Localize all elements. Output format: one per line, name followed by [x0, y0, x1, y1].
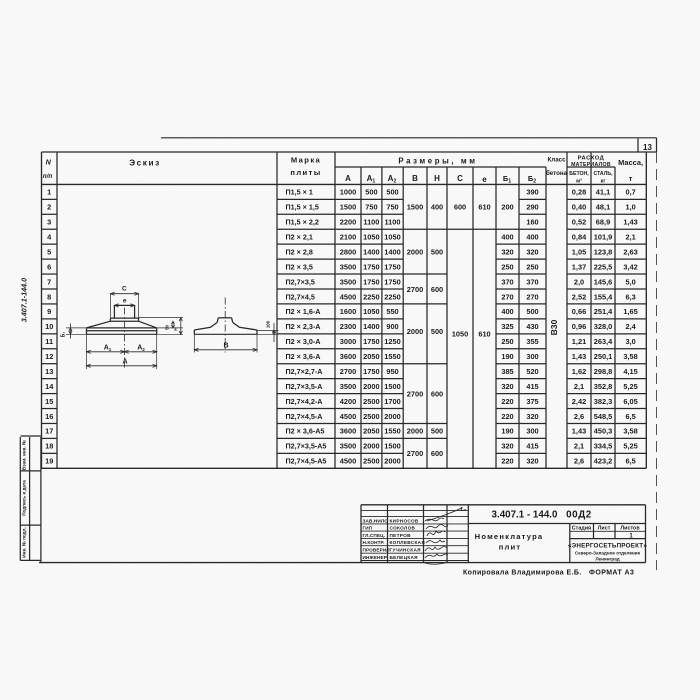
svg-text:3500: 3500: [340, 277, 356, 286]
svg-text:С: С: [457, 174, 463, 183]
svg-text:0,7: 0,7: [625, 188, 635, 197]
svg-text:0,40: 0,40: [572, 203, 586, 212]
svg-text:220: 220: [501, 457, 513, 466]
svg-text:328,0: 328,0: [594, 322, 613, 331]
svg-text:П2 × 2,3-А: П2 × 2,3-А: [286, 322, 321, 331]
svg-text:270: 270: [501, 292, 513, 301]
svg-text:9: 9: [47, 307, 51, 316]
svg-text:1500: 1500: [384, 382, 400, 391]
svg-text:550: 550: [386, 307, 398, 316]
svg-text:Н: Н: [434, 174, 440, 183]
svg-text:423,2: 423,2: [594, 457, 613, 466]
svg-text:600: 600: [454, 203, 466, 212]
svg-text:А: А: [345, 174, 351, 183]
svg-text:ГУЧИНСКАЯ: ГУЧИНСКАЯ: [390, 548, 422, 553]
svg-text:415: 415: [526, 382, 538, 391]
svg-text:2,1: 2,1: [574, 442, 584, 451]
svg-text:2,52: 2,52: [572, 292, 586, 301]
svg-text:т: т: [629, 174, 633, 183]
svg-text:250: 250: [526, 262, 538, 271]
svg-text:3.407.1 - 144.0: 3.407.1 - 144.0: [492, 509, 558, 520]
svg-text:320: 320: [526, 247, 538, 256]
svg-text:5,25: 5,25: [623, 442, 637, 451]
svg-text:Лист: Лист: [598, 526, 611, 532]
svg-text:1750: 1750: [363, 367, 379, 376]
svg-text:БЕЛЕЦКАЯ: БЕЛЕЦКАЯ: [390, 555, 419, 560]
svg-text:1100: 1100: [384, 218, 400, 227]
svg-text:500: 500: [365, 188, 377, 197]
svg-text:390: 390: [526, 188, 538, 197]
svg-text:2,42: 2,42: [572, 397, 586, 406]
svg-text:2250: 2250: [363, 292, 379, 301]
svg-text:2700: 2700: [340, 367, 356, 376]
svg-text:1400: 1400: [363, 247, 379, 256]
svg-text:2000: 2000: [384, 457, 400, 466]
svg-text:Эскиз: Эскиз: [129, 159, 161, 168]
svg-text:е: е: [123, 298, 127, 305]
svg-text:4,15: 4,15: [623, 367, 637, 376]
svg-text:«ЭНЕРГОСЕТЬПРОЕКТ»: «ЭНЕРГОСЕТЬПРОЕКТ»: [568, 542, 647, 549]
svg-text:4500: 4500: [340, 292, 356, 301]
svg-text:14: 14: [45, 382, 54, 391]
svg-text:1,0: 1,0: [625, 203, 635, 212]
svg-text:334,5: 334,5: [594, 442, 613, 451]
svg-text:ИНЖЕНЕР: ИНЖЕНЕР: [363, 555, 387, 560]
svg-text:П2 × 2,1: П2 × 2,1: [286, 232, 313, 241]
svg-text:Б₁: Б₁: [61, 332, 67, 338]
svg-text:320: 320: [526, 457, 538, 466]
svg-text:325: 325: [501, 322, 513, 331]
svg-text:2100: 2100: [340, 232, 356, 241]
svg-text:12: 12: [45, 352, 53, 361]
svg-text:101,9: 101,9: [594, 232, 613, 241]
svg-text:3,58: 3,58: [623, 427, 637, 436]
svg-text:2000: 2000: [384, 412, 400, 421]
svg-text:1,05: 1,05: [572, 247, 586, 256]
svg-text:В: В: [412, 174, 418, 183]
svg-text:2300: 2300: [340, 322, 356, 331]
svg-text:СТАЛЬ,: СТАЛЬ,: [593, 171, 613, 177]
svg-text:1750: 1750: [363, 277, 379, 286]
svg-text:123,8: 123,8: [594, 247, 613, 256]
svg-text:320: 320: [501, 442, 513, 451]
svg-text:П2,7×4,2-А: П2,7×4,2-А: [286, 397, 323, 406]
svg-text:бетона: бетона: [546, 170, 568, 177]
svg-text:352,8: 352,8: [594, 382, 613, 391]
svg-text:6,5: 6,5: [625, 412, 635, 421]
svg-text:00Д2: 00Д2: [566, 509, 592, 520]
svg-text:3500: 3500: [340, 382, 356, 391]
svg-text:0,84: 0,84: [572, 232, 587, 241]
svg-text:610: 610: [478, 330, 490, 339]
svg-text:68,9: 68,9: [596, 218, 610, 227]
svg-text:500: 500: [431, 247, 443, 256]
svg-text:1050: 1050: [384, 232, 400, 241]
svg-text:6,3: 6,3: [625, 292, 635, 301]
svg-text:КОПЛЕВСКАЯ: КОПЛЕВСКАЯ: [390, 540, 426, 545]
svg-text:6: 6: [47, 262, 51, 271]
svg-text:В30: В30: [549, 319, 559, 335]
svg-text:КИРНОСОВ: КИРНОСОВ: [390, 518, 419, 523]
svg-text:430: 430: [526, 322, 538, 331]
svg-text:415: 415: [526, 442, 538, 451]
svg-text:плиты: плиты: [290, 168, 321, 177]
svg-text:П2 × 3,6-А5: П2 × 3,6-А5: [286, 427, 325, 436]
svg-text:1,37: 1,37: [572, 262, 586, 271]
svg-text:ПРОВЕРИЛ: ПРОВЕРИЛ: [363, 548, 390, 553]
svg-text:200: 200: [501, 203, 513, 212]
svg-text:270: 270: [526, 292, 538, 301]
svg-text:355: 355: [526, 337, 538, 346]
svg-text:Номенклатура: Номенклатура: [475, 532, 544, 541]
svg-text:1,21: 1,21: [572, 337, 586, 346]
svg-text:3,58: 3,58: [623, 352, 637, 361]
svg-text:П2 × 3,0-А: П2 × 3,0-А: [286, 337, 321, 346]
svg-text:4200: 4200: [340, 397, 356, 406]
svg-text:8: 8: [47, 292, 51, 301]
svg-text:48,1: 48,1: [596, 203, 610, 212]
svg-text:13: 13: [643, 143, 652, 152]
svg-text:3500: 3500: [340, 262, 356, 271]
svg-text:1100: 1100: [363, 218, 379, 227]
svg-text:ГИП: ГИП: [363, 526, 373, 531]
svg-text:Северо-Западное отделение: Северо-Западное отделение: [575, 551, 641, 556]
svg-text:600: 600: [431, 285, 443, 294]
svg-text:3600: 3600: [340, 352, 356, 361]
svg-text:290: 290: [526, 203, 538, 212]
svg-text:500: 500: [431, 327, 443, 336]
svg-text:155,4: 155,4: [594, 292, 613, 301]
svg-text:Взам. инв. №: Взам. инв. №: [21, 440, 26, 470]
svg-text:225,5: 225,5: [594, 262, 613, 271]
svg-text:610: 610: [478, 203, 490, 212]
svg-text:3600: 3600: [340, 427, 356, 436]
svg-text:1700: 1700: [384, 397, 400, 406]
svg-text:П2 × 1,6-А: П2 × 1,6-А: [286, 307, 321, 316]
svg-text:N: N: [46, 158, 52, 167]
svg-text:320: 320: [526, 412, 538, 421]
svg-text:1,43: 1,43: [572, 352, 586, 361]
svg-text:300: 300: [526, 352, 538, 361]
svg-text:15: 15: [45, 397, 53, 406]
svg-text:2700: 2700: [407, 285, 423, 294]
svg-text:2,4: 2,4: [625, 322, 636, 331]
svg-text:190: 190: [501, 352, 513, 361]
svg-text:3,0: 3,0: [625, 337, 635, 346]
svg-text:П1,5 × 1: П1,5 × 1: [286, 188, 313, 197]
svg-text:298,8: 298,8: [594, 367, 613, 376]
svg-text:251,4: 251,4: [594, 307, 613, 316]
svg-text:1500: 1500: [384, 442, 400, 451]
svg-text:4500: 4500: [340, 412, 356, 421]
svg-text:382,3: 382,3: [594, 397, 613, 406]
svg-text:370: 370: [501, 277, 513, 286]
svg-text:Копировала Владимирова Е.Б.: Копировала Владимирова Е.Б.: [463, 570, 582, 577]
svg-text:500: 500: [431, 427, 443, 436]
svg-text:4500: 4500: [340, 457, 356, 466]
svg-text:400: 400: [501, 232, 513, 241]
svg-text:2250: 2250: [384, 292, 400, 301]
svg-text:1,43: 1,43: [572, 427, 586, 436]
svg-text:0,52: 0,52: [572, 218, 586, 227]
svg-text:600: 600: [431, 449, 443, 458]
svg-text:1400: 1400: [384, 247, 400, 256]
svg-text:1750: 1750: [384, 277, 400, 286]
svg-text:500: 500: [386, 188, 398, 197]
svg-text:2000: 2000: [363, 382, 379, 391]
svg-text:п/п: п/п: [43, 173, 53, 180]
svg-text:ПЕТРОВ: ПЕТРОВ: [390, 533, 412, 538]
svg-text:750: 750: [365, 203, 377, 212]
svg-text:548,5: 548,5: [594, 412, 613, 421]
svg-text:1750: 1750: [384, 262, 400, 271]
svg-text:2,1: 2,1: [625, 232, 635, 241]
svg-text:1500: 1500: [340, 203, 356, 212]
svg-text:19: 19: [45, 457, 53, 466]
svg-text:263,4: 263,4: [594, 337, 613, 346]
svg-text:400: 400: [431, 203, 443, 212]
svg-text:7: 7: [47, 277, 51, 286]
svg-text:220: 220: [501, 412, 513, 421]
svg-text:0,66: 0,66: [572, 307, 586, 316]
svg-text:1050: 1050: [452, 330, 468, 339]
svg-text:П2,7×3,5-А5: П2,7×3,5-А5: [286, 442, 327, 451]
svg-text:ФОРМАТ А3: ФОРМАТ А3: [589, 570, 634, 577]
svg-text:2: 2: [47, 203, 51, 212]
svg-text:0,28: 0,28: [572, 188, 586, 197]
svg-text:250,1: 250,1: [594, 352, 613, 361]
svg-text:190: 190: [501, 427, 513, 436]
svg-text:2,6: 2,6: [574, 412, 584, 421]
svg-text:П1,5 × 2,2: П1,5 × 2,2: [286, 218, 319, 227]
svg-text:ЗАВ.НИЛС: ЗАВ.НИЛС: [363, 518, 389, 523]
svg-text:160: 160: [526, 218, 538, 227]
svg-text:13: 13: [45, 367, 53, 376]
svg-text:2050: 2050: [363, 352, 379, 361]
svg-text:ГЛ.СПЕЦ.: ГЛ.СПЕЦ.: [363, 533, 386, 538]
svg-text:2,0: 2,0: [574, 277, 584, 286]
svg-text:Стадия: Стадия: [572, 526, 591, 532]
svg-text:5: 5: [47, 247, 51, 256]
svg-text:250: 250: [501, 262, 513, 271]
svg-text:10: 10: [45, 322, 53, 331]
svg-text:3000: 3000: [340, 337, 356, 346]
svg-text:2200: 2200: [340, 218, 356, 227]
svg-text:1550: 1550: [384, 427, 400, 436]
svg-text:1050: 1050: [363, 232, 379, 241]
svg-text:385: 385: [501, 367, 513, 376]
svg-text:400: 400: [501, 307, 513, 316]
svg-text:1,62: 1,62: [572, 367, 586, 376]
svg-text:220: 220: [501, 397, 513, 406]
svg-text:2000: 2000: [407, 427, 423, 436]
svg-text:РАСХОД: РАСХОД: [578, 156, 605, 162]
svg-text:320: 320: [501, 382, 513, 391]
svg-text:Листов: Листов: [620, 526, 640, 532]
svg-text:5,0: 5,0: [625, 277, 635, 286]
svg-text:16: 16: [45, 412, 53, 421]
svg-text:6,05: 6,05: [623, 397, 637, 406]
svg-text:П1,5 × 1,5: П1,5 × 1,5: [286, 203, 319, 212]
svg-text:2800: 2800: [340, 247, 356, 256]
svg-text:Марка: Марка: [291, 156, 321, 165]
svg-text:Размеры, мм: Размеры, мм: [398, 157, 477, 166]
svg-text:П2,7×3,5-А: П2,7×3,5-А: [286, 382, 323, 391]
svg-text:2000: 2000: [363, 442, 379, 451]
svg-text:П2 × 2,8: П2 × 2,8: [286, 247, 313, 256]
svg-text:1400: 1400: [363, 322, 379, 331]
svg-text:е: е: [482, 175, 487, 184]
svg-text:м³: м³: [576, 178, 582, 184]
svg-text:1600: 1600: [340, 307, 356, 316]
svg-text:0,96: 0,96: [572, 322, 586, 331]
svg-text:1,65: 1,65: [623, 307, 637, 316]
svg-text:300: 300: [526, 427, 538, 436]
svg-text:3: 3: [47, 218, 51, 227]
svg-text:320: 320: [501, 247, 513, 256]
svg-text:520: 520: [526, 367, 538, 376]
svg-text:С: С: [122, 286, 127, 293]
svg-text:750: 750: [386, 203, 398, 212]
svg-text:11: 11: [45, 337, 53, 346]
svg-text:МАТЕРИАЛОВ: МАТЕРИАЛОВ: [571, 162, 611, 168]
svg-text:2050: 2050: [363, 427, 379, 436]
svg-text:3.407.1-144.0: 3.407.1-144.0: [20, 278, 29, 322]
svg-text:3500: 3500: [340, 442, 356, 451]
svg-text:2000: 2000: [407, 247, 423, 256]
svg-text:3,42: 3,42: [623, 262, 637, 271]
svg-text:СОКОЛОВ: СОКОЛОВ: [390, 526, 416, 531]
svg-text:17: 17: [45, 427, 53, 436]
svg-text:6,5: 6,5: [625, 457, 635, 466]
svg-text:370: 370: [526, 277, 538, 286]
svg-text:П2 × 3,5: П2 × 3,5: [286, 262, 313, 271]
svg-text:П2,7×3,5: П2,7×3,5: [286, 277, 315, 286]
svg-text:5,25: 5,25: [623, 382, 637, 391]
svg-text:2500: 2500: [363, 457, 379, 466]
svg-text:1000: 1000: [340, 188, 356, 197]
svg-text:плит: плит: [499, 542, 522, 551]
svg-text:П2,7×4,5-А: П2,7×4,5-А: [286, 412, 323, 421]
svg-text:1,43: 1,43: [623, 218, 637, 227]
svg-text:Масса,: Масса,: [618, 158, 643, 167]
svg-text:Н: Н: [173, 327, 179, 331]
svg-text:41,1: 41,1: [596, 188, 610, 197]
svg-text:1: 1: [47, 188, 51, 197]
svg-text:БЕТОН,: БЕТОН,: [569, 171, 589, 177]
svg-text:400: 400: [526, 232, 538, 241]
svg-text:Н.КОНТР.: Н.КОНТР.: [363, 540, 385, 545]
svg-text:450,3: 450,3: [594, 427, 613, 436]
svg-text:600: 600: [431, 389, 443, 398]
svg-text:П2 × 3,6-А: П2 × 3,6-А: [286, 352, 321, 361]
svg-text:Подпись и дата: Подпись и дата: [21, 480, 26, 516]
svg-text:145,6: 145,6: [594, 277, 613, 286]
svg-text:А: А: [122, 358, 127, 365]
svg-text:Ленинград: Ленинград: [595, 556, 619, 561]
svg-text:2,6: 2,6: [574, 457, 584, 466]
svg-text:2500: 2500: [363, 412, 379, 421]
svg-text:Класс: Класс: [547, 157, 566, 164]
svg-text:1750: 1750: [363, 262, 379, 271]
svg-text:2,1: 2,1: [574, 382, 584, 391]
svg-text:1500: 1500: [407, 203, 423, 212]
svg-text:950: 950: [386, 367, 398, 376]
svg-text:2,63: 2,63: [623, 247, 637, 256]
svg-text:18: 18: [45, 442, 53, 451]
svg-text:500: 500: [526, 307, 538, 316]
svg-text:1050: 1050: [363, 307, 379, 316]
svg-text:900: 900: [386, 322, 398, 331]
svg-text:100: 100: [266, 320, 271, 328]
svg-text:2700: 2700: [407, 449, 423, 458]
svg-text:250: 250: [501, 337, 513, 346]
svg-text:1550: 1550: [384, 352, 400, 361]
svg-text:В: В: [223, 343, 228, 350]
svg-text:2000: 2000: [407, 327, 423, 336]
svg-text:375: 375: [526, 397, 538, 406]
svg-text:П2,7×2,7-А: П2,7×2,7-А: [286, 367, 323, 376]
svg-text:1750: 1750: [363, 337, 379, 346]
svg-text:2700: 2700: [407, 389, 423, 398]
svg-text:Инв. № подл.: Инв. № подл.: [21, 527, 26, 557]
svg-text:2500: 2500: [363, 397, 379, 406]
svg-text:П2,7×4,5-А5: П2,7×4,5-А5: [286, 457, 327, 466]
svg-text:кг: кг: [601, 178, 607, 184]
svg-text:П2,7×4,5: П2,7×4,5: [286, 292, 315, 301]
svg-text:50: 50: [165, 325, 170, 330]
svg-text:1250: 1250: [384, 337, 400, 346]
